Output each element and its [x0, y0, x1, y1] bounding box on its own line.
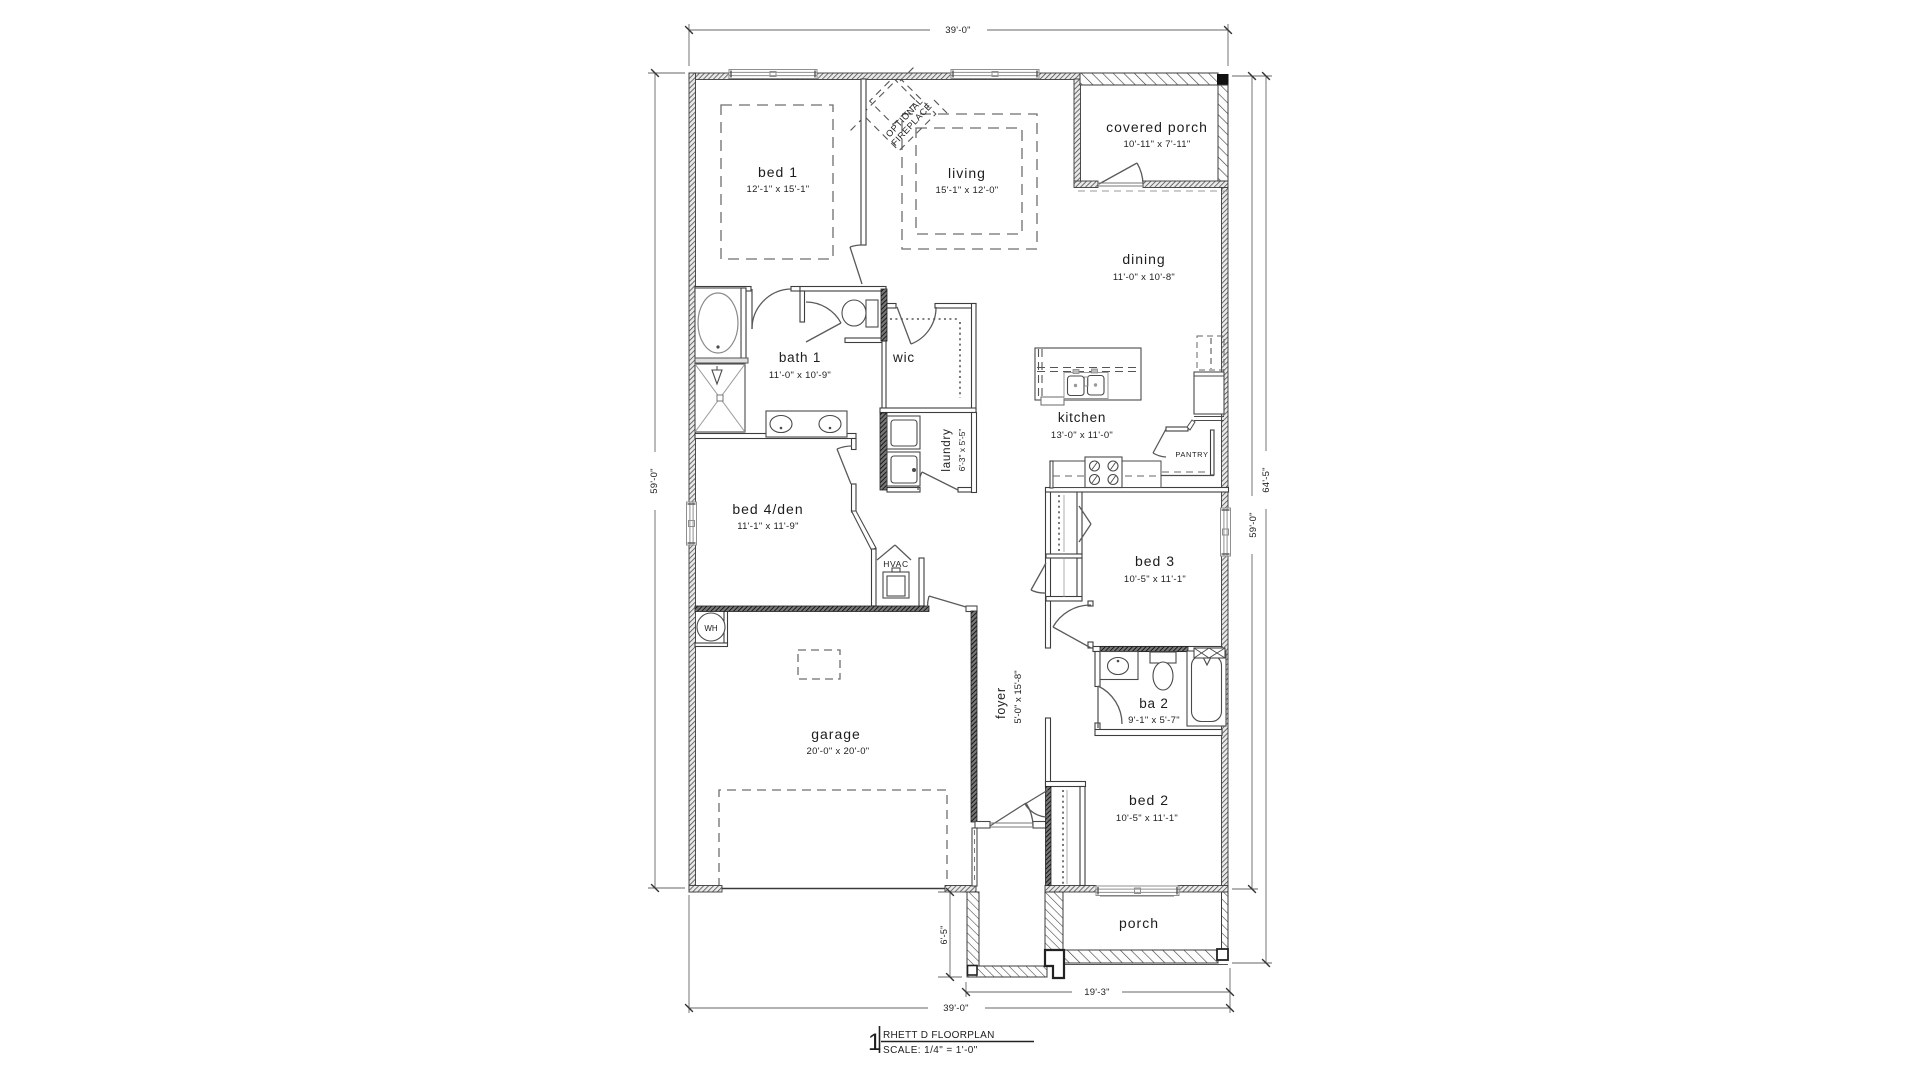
svg-text:10'-11" x 7'-11": 10'-11" x 7'-11"	[1123, 139, 1190, 150]
svg-text:bed 4/den: bed 4/den	[732, 501, 803, 517]
svg-text:bath 1: bath 1	[779, 350, 821, 365]
svg-text:6'-5": 6'-5"	[939, 926, 949, 945]
svg-text:39'-0": 39'-0"	[945, 25, 970, 36]
svg-text:HVAC: HVAC	[883, 559, 908, 569]
svg-text:bed 1: bed 1	[758, 164, 798, 180]
svg-text:foyer: foyer	[994, 687, 1008, 719]
svg-text:11'-1" x 11'-9": 11'-1" x 11'-9"	[737, 521, 799, 532]
svg-text:59'-0": 59'-0"	[649, 468, 660, 493]
svg-text:10'-5" x 11'-1": 10'-5" x 11'-1"	[1116, 813, 1178, 824]
svg-text:covered porch: covered porch	[1106, 119, 1208, 135]
svg-text:bed 3: bed 3	[1135, 553, 1175, 569]
svg-text:20'-0" x 20'-0": 20'-0" x 20'-0"	[807, 746, 870, 757]
svg-text:15'-1" x 12'-0": 15'-1" x 12'-0"	[936, 185, 999, 196]
svg-text:living: living	[948, 165, 986, 181]
svg-text:6'-3" x 5'-5": 6'-3" x 5'-5"	[957, 429, 967, 472]
svg-text:SCALE: 1/4" = 1'-0": SCALE: 1/4" = 1'-0"	[883, 1045, 978, 1056]
svg-text:bed 2: bed 2	[1129, 792, 1169, 808]
svg-text:WH: WH	[704, 624, 718, 633]
svg-text:59'-0": 59'-0"	[1248, 512, 1259, 537]
svg-text:RHETT D FLOORPLAN: RHETT D FLOORPLAN	[883, 1030, 995, 1041]
svg-text:porch: porch	[1119, 915, 1159, 931]
svg-text:10'-5" x 11'-1": 10'-5" x 11'-1"	[1124, 574, 1186, 585]
svg-text:12'-1" x 15'-1": 12'-1" x 15'-1"	[747, 184, 810, 195]
svg-text:ba 2: ba 2	[1139, 696, 1168, 711]
svg-text:5'-0" x 15'-8": 5'-0" x 15'-8"	[1013, 670, 1024, 723]
svg-text:9'-1" x 5'-7": 9'-1" x 5'-7"	[1128, 715, 1180, 726]
svg-text:dining: dining	[1122, 251, 1165, 267]
svg-text:11'-0" x 10'-9": 11'-0" x 10'-9"	[769, 370, 831, 381]
svg-text:kitchen: kitchen	[1058, 410, 1106, 425]
svg-text:11'-0" x 10'-8": 11'-0" x 10'-8"	[1113, 272, 1175, 283]
svg-text:garage: garage	[811, 726, 861, 742]
svg-text:laundry: laundry	[941, 428, 953, 471]
svg-text:wic: wic	[892, 350, 915, 365]
svg-text:64'-5": 64'-5"	[1261, 467, 1272, 492]
svg-text:39'-0": 39'-0"	[943, 1003, 968, 1014]
svg-text:13'-0" x 11'-0": 13'-0" x 11'-0"	[1051, 430, 1113, 441]
svg-text:19'-3": 19'-3"	[1084, 987, 1109, 998]
svg-text:PANTRY: PANTRY	[1175, 450, 1208, 459]
